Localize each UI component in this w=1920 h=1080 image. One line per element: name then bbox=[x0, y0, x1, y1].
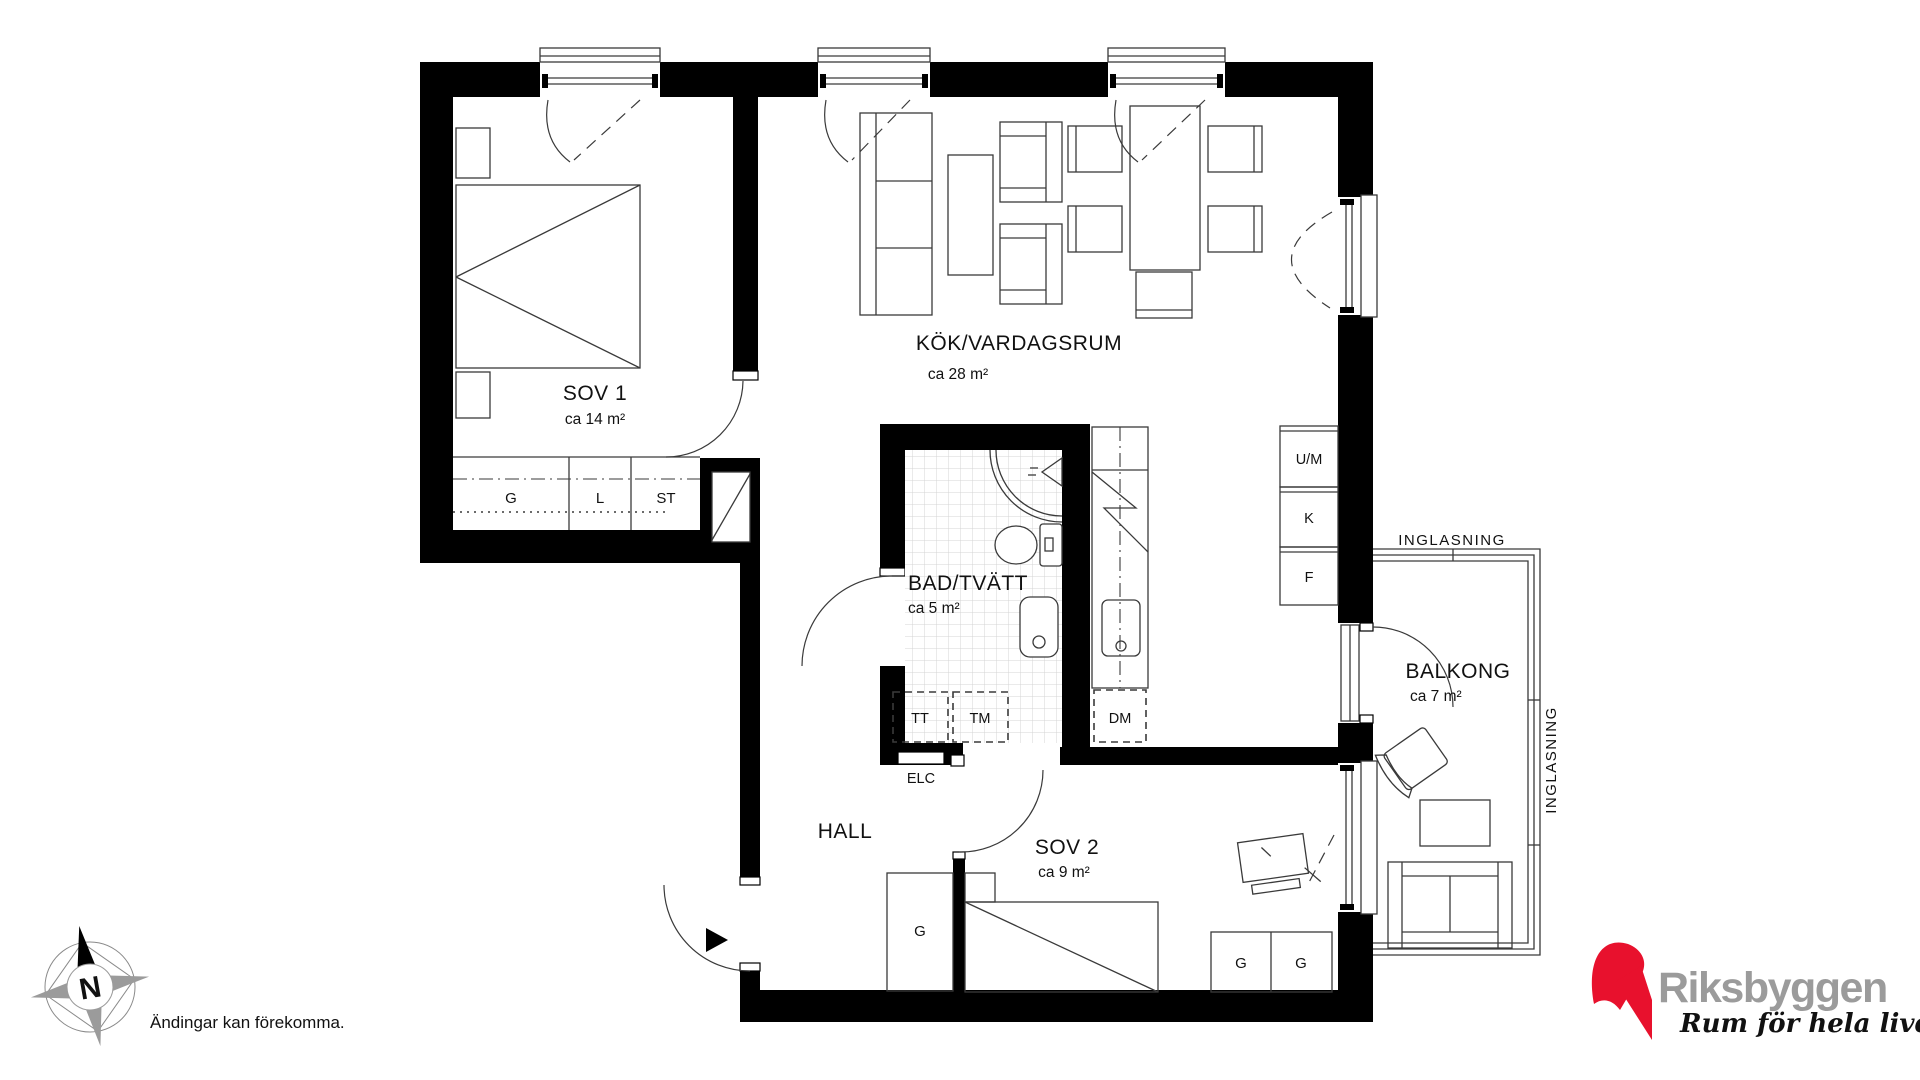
hall-g-label: G bbox=[914, 923, 926, 940]
room-sov1 bbox=[453, 128, 700, 530]
tm-label: TM bbox=[970, 711, 991, 727]
f-label: F bbox=[1305, 570, 1314, 586]
armchair bbox=[1000, 224, 1062, 304]
inglasning-top-label: INGLASNING bbox=[1398, 532, 1506, 549]
kitchen-sink-icon bbox=[1102, 600, 1140, 656]
sofa bbox=[860, 113, 932, 315]
window-sov2 bbox=[1306, 761, 1377, 914]
dining-table bbox=[1130, 106, 1200, 270]
desk bbox=[1238, 832, 1322, 895]
disclaimer-text: Ändingar kan förekomma. bbox=[150, 1013, 345, 1032]
bad-area: ca 5 m² bbox=[908, 600, 960, 617]
k-label: K bbox=[1304, 511, 1314, 527]
elc-label: ELC bbox=[907, 771, 935, 787]
dining-chair bbox=[1136, 272, 1192, 318]
balkong-label: BALKONG bbox=[1405, 660, 1510, 683]
compass-rose-icon: N bbox=[20, 916, 159, 1057]
sov1-area: ca 14 m² bbox=[565, 411, 625, 428]
coffee-table bbox=[948, 155, 993, 275]
sov2-area: ca 9 m² bbox=[1038, 864, 1090, 881]
sov2-label: SOV 2 bbox=[1035, 836, 1099, 859]
riksbyggen-ribbon-icon bbox=[1592, 942, 1652, 1040]
kitchen-counter bbox=[1092, 427, 1148, 742]
dm-label: DM bbox=[1109, 711, 1132, 727]
entrance-door-arc bbox=[664, 885, 750, 971]
window-kok-east bbox=[1291, 195, 1377, 317]
bad-label: BAD/TVÄTT bbox=[908, 572, 1028, 595]
sov2-g1-label: G bbox=[1235, 955, 1247, 972]
floor-plan-drawing: SOV 1 ca 14 m² KÖK/VARDAGSRUM ca 28 m² B… bbox=[0, 0, 1920, 1080]
elc-cabinet bbox=[898, 752, 944, 764]
armchair bbox=[1000, 122, 1062, 202]
balkong-area: ca 7 m² bbox=[1410, 688, 1462, 705]
floor-plan-page: SOV 1 ca 14 m² KÖK/VARDAGSRUM ca 28 m² B… bbox=[0, 0, 1920, 1080]
bed-double bbox=[456, 185, 640, 368]
room-kok-furniture bbox=[860, 106, 1262, 318]
closet-st-label: ST bbox=[656, 490, 675, 507]
nightstand bbox=[456, 372, 490, 418]
sov1-label: SOV 1 bbox=[563, 382, 627, 405]
nightstand bbox=[965, 873, 995, 902]
sov2-door-arc bbox=[959, 770, 1043, 852]
tt-label: TT bbox=[911, 711, 929, 727]
logo-name: Riksbyggen bbox=[1658, 964, 1887, 1012]
hall-label: HALL bbox=[818, 820, 873, 843]
balcony-sofa bbox=[1388, 862, 1512, 948]
closet-g-label: G bbox=[505, 490, 517, 507]
kok-area: ca 28 m² bbox=[928, 366, 988, 383]
window-kok-left bbox=[818, 48, 930, 162]
nightstand bbox=[456, 128, 490, 178]
sov2-g2-label: G bbox=[1295, 955, 1307, 972]
riksbyggen-logo: Riksbyggen Rum för hela livet bbox=[1592, 942, 1920, 1040]
inglasning-right-label: INGLASNING bbox=[1543, 706, 1560, 814]
kok-label: KÖK/VARDAGSRUM bbox=[916, 332, 1122, 355]
logo-tagline: Rum för hela livet bbox=[1679, 1009, 1920, 1039]
window-sov1 bbox=[540, 48, 660, 162]
sov1-door-arc bbox=[666, 381, 743, 457]
entrance-arrow-icon bbox=[706, 928, 728, 952]
balcony-table bbox=[1420, 800, 1490, 846]
glazing-frame bbox=[1373, 549, 1540, 955]
closet-l-label: L bbox=[596, 490, 604, 507]
toilet-icon bbox=[1040, 524, 1062, 566]
balcony bbox=[1373, 549, 1540, 955]
bath-door-arc bbox=[802, 576, 892, 666]
balcony-armchair bbox=[1373, 723, 1452, 801]
um-label: U/M bbox=[1296, 452, 1323, 468]
